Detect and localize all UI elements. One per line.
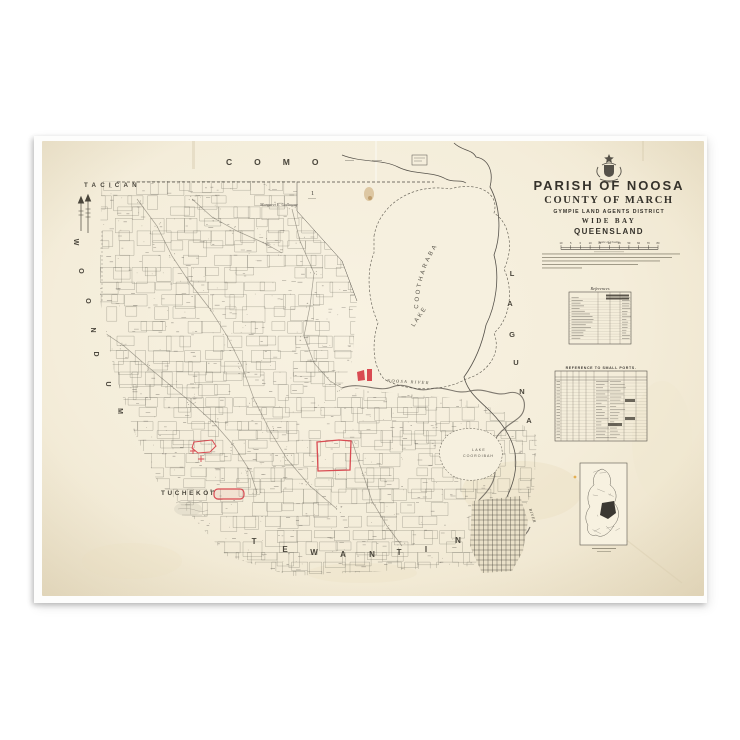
- label-laguna-letter: N: [519, 387, 524, 396]
- table-cell-text-line: [596, 425, 601, 426]
- table-row-text-line: [572, 333, 584, 334]
- table-cell-text-line: [557, 384, 561, 385]
- table-cell-text-line: [622, 303, 629, 304]
- label-laguna-letter: L: [510, 269, 515, 278]
- fine-print-line: [542, 254, 680, 255]
- table-cell-text-line: [596, 406, 606, 407]
- table-row-text-line: [572, 324, 586, 325]
- table-cell-text-line: [557, 418, 561, 419]
- table-cell-text-line: [622, 330, 626, 331]
- table-cell-text-line: [610, 387, 626, 388]
- table-cell-text-line: [596, 415, 604, 416]
- table-row-text-line: [572, 314, 590, 315]
- fine-print-line: [542, 268, 582, 269]
- table-cell-text-line: [610, 409, 625, 410]
- table-row-text-line: [572, 330, 586, 331]
- title-district: GYMPIE LAND AGENTS DISTRICT: [553, 209, 664, 215]
- table-row-text-line: [572, 319, 594, 320]
- table-cell-text-line: [596, 431, 606, 432]
- table-row-text-line: [572, 335, 584, 336]
- label-tewantin-letter: T: [252, 537, 257, 546]
- table-row-text-line: [572, 311, 585, 312]
- map-paper: TACICAN COMO WOONDUM LAGUNA TEWANTIN COO…: [42, 141, 704, 596]
- table-cell-text-line: [557, 387, 561, 388]
- red-filled-parcel-b: [367, 369, 372, 381]
- label-tewantin-letter: N: [369, 550, 375, 559]
- table-cell-text-line: [557, 437, 561, 438]
- label-tuchekoi-suffix: Pa.: [210, 489, 215, 493]
- table-cell-text-line: [557, 434, 561, 435]
- label-laguna-letter: U: [513, 358, 518, 367]
- label-woondum-letter: N: [89, 327, 96, 332]
- label-woondum-letter: O: [84, 298, 91, 304]
- table-cell-text-line: [610, 412, 620, 413]
- table-cell-text-line: [596, 384, 605, 385]
- label-laguna-letter: G: [509, 330, 515, 339]
- table-cell-text-line: [596, 409, 602, 410]
- small-ports-title: REFERENCE TO SMALL PORTS.: [566, 366, 637, 370]
- table-cell-text-line: [610, 381, 621, 382]
- label-tewantin-letter: N: [455, 536, 461, 545]
- table-cell-text-line: [622, 325, 628, 326]
- table-cell-text-line: [610, 400, 620, 401]
- map-poster: TACICAN COMO WOONDUM LAGUNA TEWANTIN COO…: [34, 136, 707, 603]
- table-cell-text-line: [596, 437, 610, 438]
- table-row-text-line: [572, 327, 591, 328]
- table-cell-text-line: [610, 403, 625, 404]
- table-cell-text-line: [610, 415, 618, 416]
- table-cell-text-line: [610, 434, 620, 435]
- table-cell-text-line: [596, 387, 603, 388]
- table-cell-text-line: [557, 400, 561, 401]
- table-cell-text-line: [610, 431, 618, 432]
- label-cooroibah: COOROIBAH: [463, 454, 494, 458]
- label-woondum-letter: U: [104, 381, 111, 386]
- table-cell-text-line: [596, 422, 601, 423]
- table-row-text-line: [572, 338, 581, 339]
- table-cell-text-line: [622, 316, 631, 317]
- table-cell-text-line: [610, 384, 625, 385]
- scale-subcaption-line: [594, 252, 624, 253]
- table-cell-text-line: [557, 415, 561, 416]
- label-tuchekoi: TUCHEKOI: [161, 490, 215, 497]
- table-cell-text-line: [622, 308, 630, 309]
- title-parish: PARISH OF NOOSA: [533, 178, 684, 193]
- table-cell-text-line: [610, 391, 621, 392]
- table-cell-text-line: [557, 412, 561, 413]
- references-title: References: [589, 286, 609, 291]
- table-cell-text-line: [622, 327, 628, 328]
- table-cell-text-line: [557, 381, 561, 382]
- table-row-text-line: [572, 300, 583, 301]
- red-rounded-parcel: [214, 489, 244, 499]
- fine-print-line: [542, 261, 660, 262]
- table-cell-text-line: [596, 391, 610, 392]
- table-row-text-line: [572, 322, 593, 323]
- table-cell-text-line: [557, 431, 561, 432]
- label-tewantin-letter: W: [310, 548, 318, 557]
- table-cell-text-line: [610, 428, 617, 429]
- table-cell-text-line: [557, 422, 561, 423]
- map-svg: TACICAN COMO WOONDUM LAGUNA TEWANTIN COO…: [42, 141, 704, 596]
- table-cell-text-line: [610, 394, 624, 395]
- label-woondum-letter: W: [72, 239, 79, 246]
- table-row-text-line: [572, 316, 593, 317]
- label-tewantin-letter: A: [340, 550, 346, 559]
- table-cell-text-line: [610, 437, 617, 438]
- table-cell-text-line: [557, 409, 561, 410]
- yellow-stain: [574, 476, 577, 479]
- table-cell-text-line: [610, 406, 616, 407]
- table-cell-text-line: [610, 397, 621, 398]
- table-cell-text-line: [622, 338, 630, 339]
- fine-print-line: [542, 264, 638, 265]
- label-woondum-letter: O: [77, 268, 84, 274]
- table-cell-text-line: [596, 403, 602, 404]
- table-row-text-line: [572, 303, 581, 304]
- table-cell-text-line: [596, 397, 607, 398]
- table-cell-text-line: [622, 314, 627, 315]
- label-tewantin-letter: E: [282, 545, 288, 554]
- inset-index-map: [580, 463, 627, 552]
- table-cell-text-line: [596, 400, 607, 401]
- table-cell-text-line: [622, 300, 630, 301]
- label-tacican: TACICAN: [84, 182, 141, 189]
- table-cell-text-line: [557, 425, 561, 426]
- product-photo-background: TACICAN COMO WOONDUM LAGUNA TEWANTIN COO…: [0, 0, 740, 740]
- fine-print-line: [542, 257, 672, 258]
- lake-cootharaba: [369, 186, 509, 388]
- table-cell-text-line: [596, 434, 605, 435]
- label-settler-name: Margaret E. Galloway: [259, 202, 298, 207]
- title-region: WIDE BAY: [582, 217, 637, 225]
- label-laguna-letter: A: [507, 299, 513, 308]
- table-cell-text-line: [557, 403, 561, 404]
- table-cell-text-line: [610, 422, 614, 423]
- table-cell-text-line: [622, 319, 626, 320]
- title-county: COUNTY OF MARCH: [544, 195, 673, 206]
- table-cell-text-line: [622, 333, 626, 334]
- table-cell-text-line: [622, 335, 630, 336]
- label-portion-one: 1: [311, 190, 314, 197]
- table-cell-text-line: [557, 397, 561, 398]
- table-cell-text-line: [596, 428, 609, 429]
- title-state: QUEENSLAND: [574, 227, 644, 236]
- table-cell-text-line: [557, 428, 561, 429]
- table-cell-text-line: [557, 406, 561, 407]
- label-como: COMO: [226, 157, 340, 167]
- label-laguna-letter: A: [526, 416, 532, 425]
- table-cell-text-line: [557, 391, 561, 392]
- label-woondum-letter: D: [92, 351, 99, 356]
- table-cell-text-line: [622, 322, 628, 323]
- table-cell-text-line: [596, 394, 605, 395]
- table-cell-text-line: [622, 311, 628, 312]
- table-cell-text-line: [622, 306, 629, 307]
- table-row-text-line: [572, 297, 579, 298]
- table-row-text-line: [572, 306, 585, 307]
- label-woondum-letter: M: [116, 408, 123, 414]
- table-cell-text-line: [596, 418, 609, 419]
- label-tewantin-letter: T: [397, 548, 402, 557]
- table-cell-text-line: [610, 418, 618, 419]
- table-cell-text-line: [596, 412, 605, 413]
- label-cooroibah-lake: LAKE: [472, 448, 486, 452]
- table-row-text-line: [572, 308, 580, 309]
- label-tewantin-letter: I: [425, 545, 427, 554]
- table-cell-text-line: [596, 381, 608, 382]
- table-cell-text-line: [557, 394, 561, 395]
